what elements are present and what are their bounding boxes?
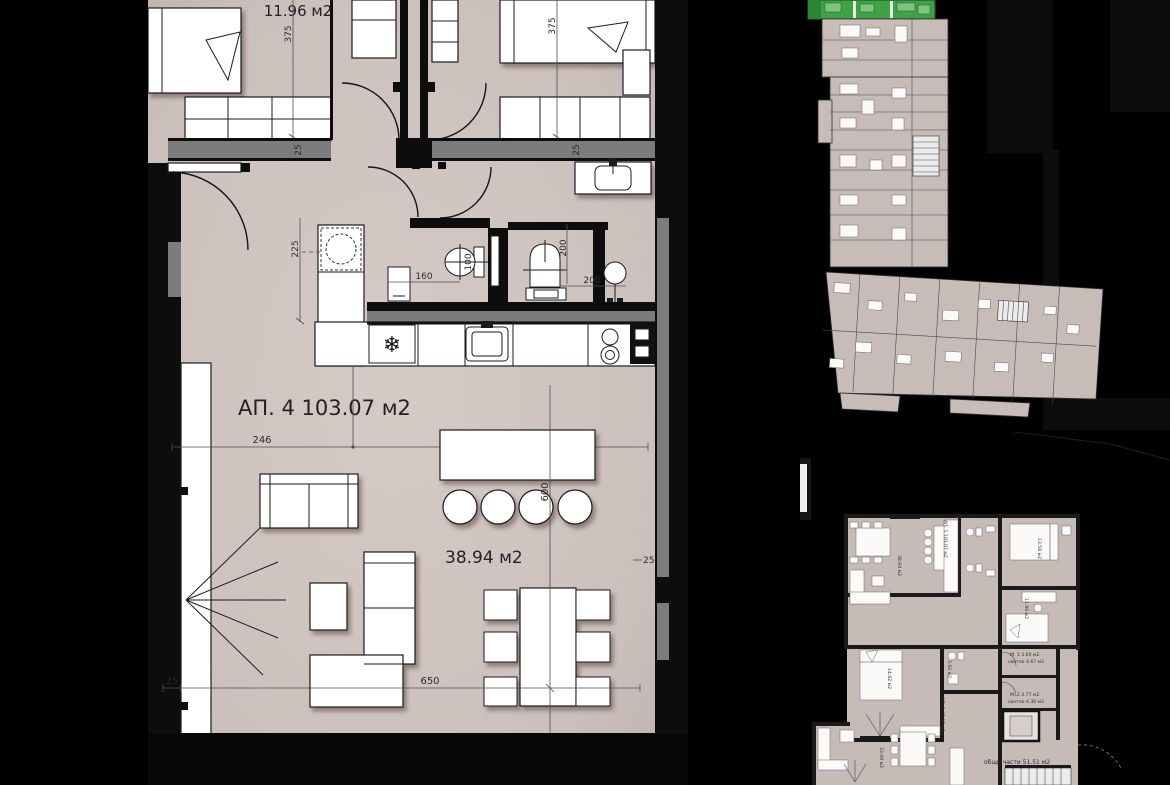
bath-small-label: 3.92 м2 bbox=[946, 660, 952, 678]
dim-wall-bottom-left: 25 bbox=[166, 677, 177, 687]
dining-table bbox=[900, 732, 926, 766]
coffee-table bbox=[872, 576, 884, 586]
bottom-wall bbox=[148, 733, 688, 785]
wardrobe bbox=[352, 0, 396, 58]
apt1-living-label: 38.94 м2 bbox=[896, 555, 902, 576]
chair bbox=[576, 590, 610, 620]
apt1-label: АП. 1 103.07 м2 bbox=[942, 520, 948, 558]
window-ledge bbox=[181, 363, 211, 740]
bed bbox=[148, 8, 241, 93]
storage2-line2: светло 4.30 м2 bbox=[1008, 699, 1044, 705]
bed bbox=[860, 650, 902, 700]
dim-living-seg-left: 246 bbox=[252, 435, 271, 446]
living-area-label: 38.94 м2 bbox=[445, 548, 523, 568]
armchair bbox=[840, 730, 854, 742]
highlighted-apartment-green bbox=[808, 0, 935, 19]
dim-bedroom-left-height: 375 bbox=[284, 25, 294, 42]
bedroom-left-label: 14.62 м2 bbox=[886, 668, 892, 689]
entrance-door-leaf bbox=[168, 163, 241, 172]
apt1-bedroom-bottom-label: 11.96 м2 bbox=[1023, 598, 1029, 619]
dim-living-width: 650 bbox=[420, 676, 439, 687]
stair-core bbox=[913, 136, 939, 176]
dim-wall-top-left: 25 bbox=[294, 144, 304, 155]
dim-hall-depth: 225 bbox=[291, 240, 301, 257]
vanity-sink bbox=[575, 158, 651, 194]
chair bbox=[576, 632, 610, 662]
key-plan-body: 38.94 м2 АП. 1 103.07 м2 13.58 м2 bbox=[812, 514, 1122, 785]
dining-table bbox=[856, 528, 890, 556]
dim-wc-depth: 100 bbox=[464, 253, 474, 270]
apt2-label: АП. 2 67.97 м2 bbox=[939, 697, 945, 732]
building-wing-lower bbox=[819, 272, 1103, 417]
common-areas-label: общи части 51.51 м2 bbox=[984, 759, 1050, 766]
dim-wall-top-right: 25 bbox=[572, 144, 582, 155]
snowflake-icon: ❄ bbox=[383, 333, 401, 358]
wall-top-right: 25 bbox=[432, 138, 655, 161]
building-wing-vertical bbox=[818, 19, 948, 267]
storage1-line2: светло 4.67 м2 bbox=[1008, 659, 1044, 665]
building-overview-plan bbox=[800, 0, 1170, 430]
chair bbox=[484, 632, 517, 662]
dim-bath-height: 200 bbox=[559, 239, 569, 256]
dim-wc-width: 160 bbox=[415, 272, 432, 282]
bedroom-area-label: 11.96 м2 bbox=[264, 2, 333, 20]
kitchen-island bbox=[440, 430, 595, 480]
floorplan-sheet: 11.96 м2 375 25 bbox=[0, 0, 1170, 785]
dim-living-height: 600 bbox=[540, 482, 551, 501]
chair bbox=[484, 590, 517, 620]
chair bbox=[484, 677, 517, 706]
dim-bedroom-right-height: 375 bbox=[548, 17, 558, 34]
storage2-line1: М. 2 3.77 м2 bbox=[1010, 692, 1039, 698]
wc-door-leaf bbox=[491, 236, 499, 286]
bedroom-divider-wall bbox=[330, 0, 333, 140]
dim-bath-width: 200 bbox=[583, 276, 600, 286]
storage1-line1: М. 1 3.60 м2 bbox=[1010, 652, 1039, 658]
chair bbox=[576, 677, 610, 706]
kitchen-strip bbox=[950, 748, 964, 785]
svg-text:25: 25 bbox=[643, 556, 654, 566]
closet bbox=[500, 97, 650, 140]
stairs bbox=[1005, 765, 1071, 785]
wardrobe bbox=[623, 50, 650, 95]
oven-unit bbox=[630, 323, 655, 364]
sofa bbox=[260, 474, 358, 528]
main-apartment-plan: 11.96 м2 375 25 bbox=[148, 0, 688, 785]
kitchen-counter: ❄ bbox=[315, 321, 655, 366]
plan-fragment bbox=[800, 464, 807, 512]
closet bbox=[432, 0, 458, 62]
elevator bbox=[1003, 711, 1039, 741]
wall-top-left: 25 bbox=[168, 138, 331, 161]
apt2-living-label: 33.09 м2 bbox=[878, 747, 884, 768]
entrance-swing-dashed bbox=[1078, 745, 1122, 770]
stair-core-2 bbox=[997, 300, 1028, 322]
side-table bbox=[310, 583, 347, 630]
context-line bbox=[1014, 432, 1170, 460]
apt1-bedroom-top-label: 13.58 м2 bbox=[1036, 538, 1042, 559]
key-plan: 38.94 м2 АП. 1 103.07 м2 13.58 м2 bbox=[800, 430, 1170, 785]
apartment-label: АП. 4 103.07 м2 bbox=[238, 396, 411, 420]
kitchen-sink bbox=[466, 321, 508, 361]
